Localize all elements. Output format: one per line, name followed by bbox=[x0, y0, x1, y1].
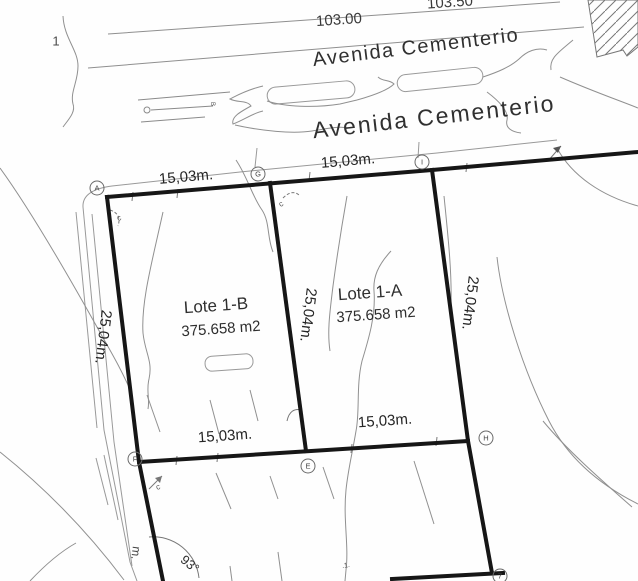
vertex-marker-f: F bbox=[128, 452, 143, 467]
vertex-marker-i: I bbox=[415, 155, 430, 170]
vertex-marker-e: E bbox=[301, 459, 316, 474]
vertex-label-g: G bbox=[255, 170, 261, 179]
vertex-label-e: E bbox=[305, 462, 310, 471]
vertex-label-i: I bbox=[421, 158, 423, 167]
lot-boundaries bbox=[107, 152, 638, 581]
vertex-marker-h: H bbox=[479, 431, 494, 446]
vertex-label-f: F bbox=[133, 455, 138, 464]
partial-dimension-text: m. bbox=[128, 546, 144, 561]
vertex-label-h: H bbox=[483, 434, 488, 443]
dots-annotation: .1. bbox=[342, 562, 351, 570]
boundary-left bbox=[107, 197, 163, 581]
vertex-label-a: A bbox=[94, 184, 99, 193]
survey-plan-sheet: 1 103.50 103.00 Avenida Cementerio Aveni… bbox=[0, 0, 638, 581]
hatched-area bbox=[588, 0, 638, 57]
sheet-number: 1 bbox=[52, 34, 59, 49]
boundary-next-block bbox=[392, 573, 503, 579]
vertex-label-7: 7 bbox=[498, 572, 502, 581]
annotation-marks bbox=[110, 146, 561, 578]
elevation-label-103-00: 103.00 bbox=[316, 10, 363, 30]
vertex-marker-g: G bbox=[251, 167, 266, 182]
vertex-marker-a: A bbox=[90, 181, 105, 196]
vertex-marker-7: 7 bbox=[493, 569, 508, 581]
boundary-right bbox=[432, 170, 492, 573]
benchmark-symbol bbox=[138, 92, 230, 122]
benchmark-label: B bbox=[209, 102, 215, 106]
